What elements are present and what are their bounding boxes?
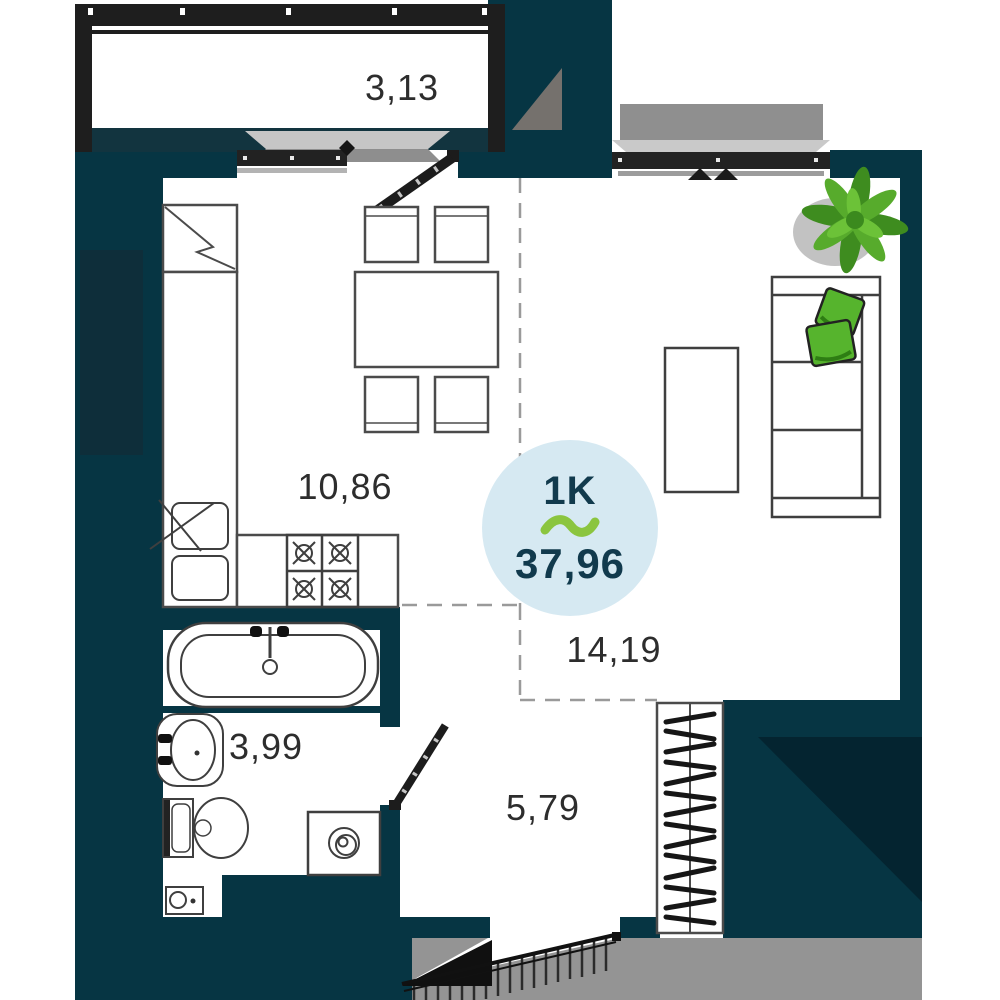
- total-area-label: 37,96: [515, 543, 625, 585]
- fridge-icon: [163, 205, 237, 272]
- unit-type-label: 1K: [543, 471, 596, 511]
- bathroom-cabinet-icon: [166, 887, 203, 914]
- tilde-icon: [539, 515, 601, 539]
- room-area-label-kitchen: 10,86: [297, 466, 392, 508]
- living-window-icon: [612, 104, 830, 180]
- room-area-label-living: 14,19: [566, 629, 661, 671]
- room-area-label-hallway: 5,79: [506, 787, 580, 829]
- unit-summary-badge: 1K 37,96: [482, 440, 658, 616]
- room-area-label-balcony: 3,13: [365, 67, 439, 109]
- dining-table-icon: [355, 272, 498, 367]
- room-area-label-bathroom: 3,99: [229, 726, 303, 768]
- plant-icon: [793, 165, 910, 275]
- coffee-table-icon: [665, 348, 738, 492]
- floor-plan: 3,13 10,86 14,19 3,99 5,79 1K 37,96: [0, 0, 1000, 1000]
- stove-icon: [287, 535, 358, 607]
- sink-icon: [157, 714, 223, 786]
- bathtub-icon: [168, 623, 378, 707]
- bathroom-door-icon: [389, 723, 449, 810]
- toilet-icon: [163, 798, 248, 858]
- wardrobe-icon: [657, 703, 723, 933]
- washing-machine-icon: [308, 812, 380, 875]
